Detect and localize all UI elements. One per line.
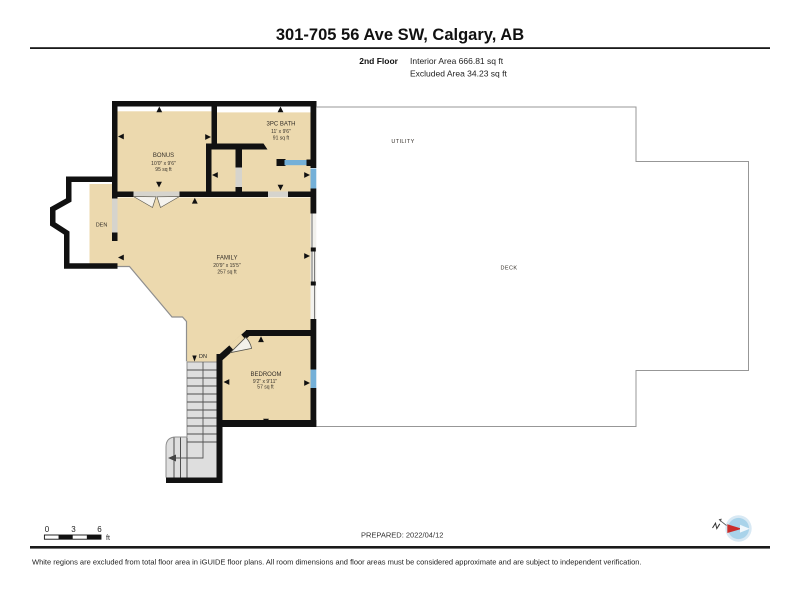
svg-text:3: 3 — [71, 525, 76, 534]
svg-text:6: 6 — [97, 525, 102, 534]
svg-text:BONUS: BONUS — [153, 153, 174, 159]
svg-text:10'0" x 9'6": 10'0" x 9'6" — [151, 161, 176, 167]
svg-text:DEN: DEN — [96, 223, 108, 229]
svg-text:PREPARED: 2022/04/12: PREPARED: 2022/04/12 — [361, 531, 443, 540]
svg-text:301-705 56 Ave SW, Calgary, AB: 301-705 56 Ave SW, Calgary, AB — [276, 26, 524, 44]
svg-text:20'9" x 15'5": 20'9" x 15'5" — [213, 263, 241, 269]
svg-text:BEDROOM: BEDROOM — [250, 372, 281, 378]
svg-text:DECK: DECK — [501, 266, 518, 272]
svg-text:Excluded Area 34.23 sq ft: Excluded Area 34.23 sq ft — [410, 69, 508, 79]
svg-text:0: 0 — [45, 525, 50, 534]
svg-text:2nd Floor: 2nd Floor — [359, 56, 398, 66]
svg-text:257 sq ft: 257 sq ft — [217, 270, 237, 276]
svg-text:3PC BATH: 3PC BATH — [267, 122, 296, 128]
svg-text:UTILITY: UTILITY — [391, 139, 414, 145]
svg-text:95 sq ft: 95 sq ft — [155, 167, 172, 173]
svg-text:DN: DN — [199, 354, 207, 360]
svg-text:Interior Area 666.81 sq ft: Interior Area 666.81 sq ft — [410, 56, 504, 66]
svg-text:FAMILY: FAMILY — [217, 256, 238, 262]
svg-text:White regions are excluded fro: White regions are excluded from total fl… — [32, 558, 642, 567]
svg-text:11' x 9'6": 11' x 9'6" — [271, 129, 291, 135]
svg-text:91 sq ft: 91 sq ft — [273, 135, 290, 141]
svg-text:57 sq ft: 57 sq ft — [257, 385, 274, 391]
svg-text:ft: ft — [106, 535, 110, 542]
